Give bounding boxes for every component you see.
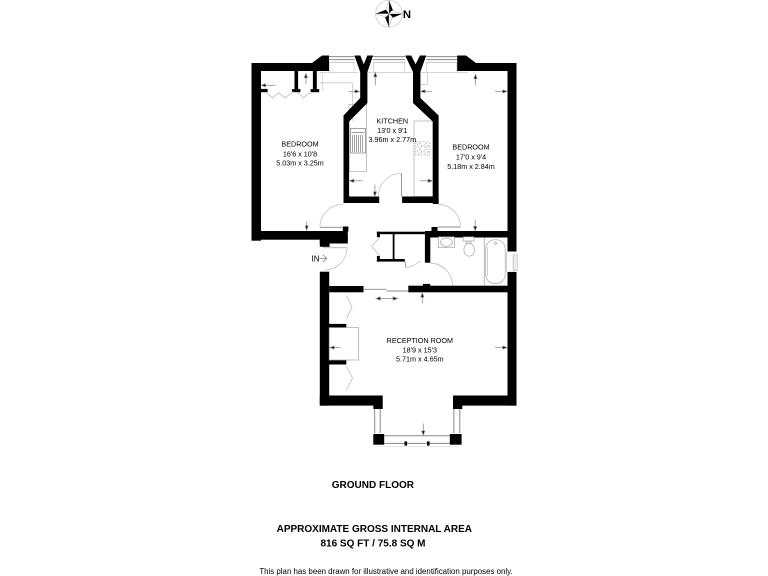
svg-text:18'9 x 15'3: 18'9 x 15'3	[403, 345, 437, 354]
svg-text:5.18m x 2.84m: 5.18m x 2.84m	[447, 162, 495, 171]
svg-text:5.71m x 4.65m: 5.71m x 4.65m	[396, 355, 444, 364]
svg-text:KITCHEN: KITCHEN	[377, 117, 409, 126]
svg-text:3.96m x 2.77m: 3.96m x 2.77m	[369, 135, 417, 144]
svg-text:13'0 x 9'1: 13'0 x 9'1	[377, 126, 407, 135]
svg-text:N: N	[403, 9, 411, 21]
svg-text:5.03m x 3.25m: 5.03m x 3.25m	[276, 159, 324, 168]
svg-text:BEDROOM: BEDROOM	[281, 139, 318, 148]
svg-text:816 SQ FT / 75.8 SQ M: 816 SQ FT / 75.8 SQ M	[320, 538, 425, 549]
svg-text:16'6 x 10'8: 16'6 x 10'8	[283, 149, 317, 158]
svg-text:GROUND FLOOR: GROUND FLOOR	[332, 480, 415, 491]
svg-text:17'0 x 9'4: 17'0 x 9'4	[456, 152, 486, 161]
svg-text:APPROXIMATE GROSS INTERNAL ARE: APPROXIMATE GROSS INTERNAL AREA	[277, 524, 472, 535]
svg-text:RECEPTION ROOM: RECEPTION ROOM	[387, 336, 453, 345]
svg-text:IN: IN	[312, 255, 320, 264]
svg-text:This plan has been drawn for i: This plan has been drawn for illustrativ…	[259, 567, 512, 576]
svg-text:BEDROOM: BEDROOM	[452, 143, 489, 152]
